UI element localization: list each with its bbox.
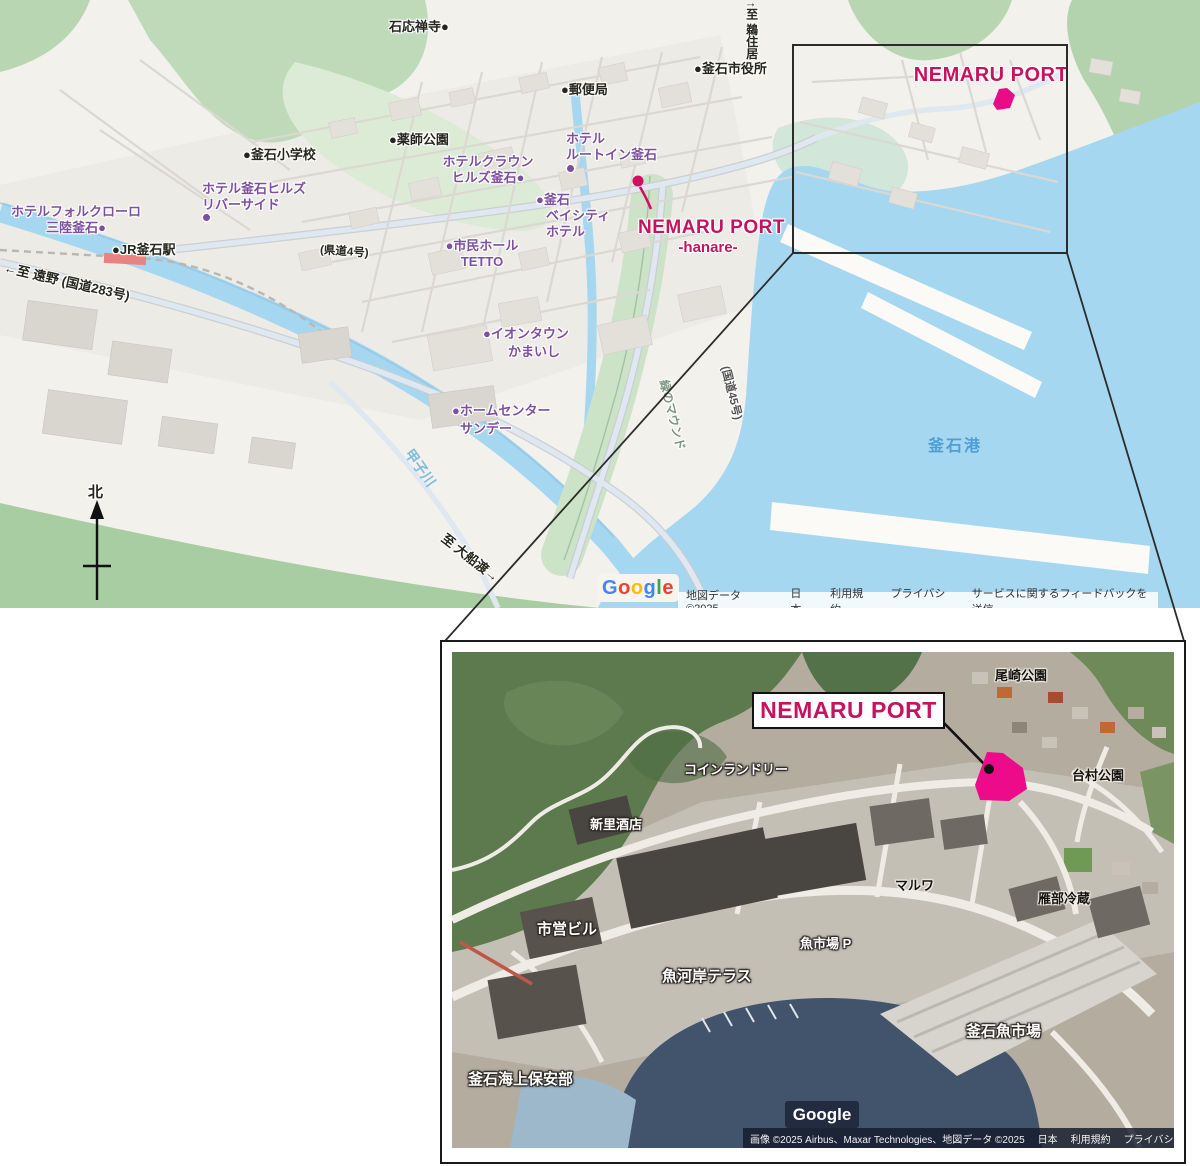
label-hotel-route-inn: ホテル ルートイン釜石 [566,131,657,163]
attribution-privacy-link[interactable]: プライバシー [891,585,953,609]
label-folkloro-line1: ホテルフォルクローロ [8,204,144,220]
satellite-map[interactable]: 尾崎公園 NEMARU PORT 台村公園 コインランドリー 新里酒店 マルワ … [452,652,1174,1148]
label-civic-hall-tetto: ●市民ホール TETTO [430,238,534,270]
label-hotel-crown-line2: ヒルズ釜石● [438,170,538,186]
google-letter: o [631,577,644,600]
label-kamaishi-port-sea: 釜石港 [928,437,982,457]
label-maruwa: マルワ [895,879,934,893]
label-north: 北 [88,484,103,502]
label-sekio-zenji-temple: 石応禅寺● [389,19,449,35]
map-screenshot: 石応禅寺● ●郵便局 ●釜石市役所 ↑至 鵜住居 ●薬師公園 ●釜石小学校 ホテ… [0,0,1200,1166]
label-fish-market-parking: 魚市場 P [800,937,851,951]
label-jr-kamaishi-station: ●JR釜石駅 [112,242,175,258]
attribution-terms-link[interactable]: 利用規約 [830,585,871,609]
label-aeon-town-line1: ●イオンタウン [483,326,569,342]
nemaru-port-callout-box: NEMARU PORT [752,692,945,729]
label-hotel-kamaishi-hills: ホテル釜石ヒルズ リバーサイド [202,181,306,213]
label-hanare-line1: NEMARU PORT [638,216,778,239]
label-hanare-line2: -hanare- [638,239,778,257]
inset-attribution-credit: 画像 ©2025 Airbus、Maxar Technologies、地図データ… [750,1131,1025,1146]
label-city-hall: ●釜石市役所 [694,61,767,77]
label-post-office: ●郵便局 [561,82,608,98]
label-baycity-line2: ベイシティ [536,208,610,224]
label-hotel-route-inn-line1: ホテル [566,131,657,147]
label-daimura-park: 台村公園 [1072,769,1124,783]
label-hotel-crown-line1: ホテルクラウン [438,154,538,170]
inset-attribution-bar: 画像 ©2025 Airbus、Maxar Technologies、地図データ… [743,1128,1174,1148]
label-yakushi-park: ●薬師公園 [389,132,449,148]
inset-attribution-privacy-link[interactable]: プライバシー [1124,1131,1174,1146]
label-aeon-town-line2: かまいし [508,344,560,360]
inset-frame: 尾崎公園 NEMARU PORT 台村公園 コインランドリー 新里酒店 マルワ … [440,640,1186,1164]
label-baycity-line3: ホテル [536,224,610,240]
street-map[interactable]: 石応禅寺● ●郵便局 ●釜石市役所 ↑至 鵜住居 ●薬師公園 ●釜石小学校 ホテ… [0,0,1200,608]
label-tetto-line2: TETTO [430,254,534,270]
google-letter: g [644,577,657,600]
label-folkloro-line2: 三陸釜石● [8,220,144,236]
inset-attribution-country: 日本 [1038,1131,1058,1146]
label-hotel-hills-line1: ホテル釜石ヒルズ [202,181,306,197]
label-home-center-sunday-line1: ●ホームセンター [452,403,550,419]
label-baycity-hotel: ●釜石 ベイシティ ホテル [536,192,610,240]
label-baycity-line1: ●釜石 [536,192,610,208]
label-niisato-saketen: 新里酒店 [590,818,642,832]
label-tetto-line1: ●市民ホール [430,238,534,254]
label-hotel-folkloro: ホテルフォルクローロ 三陸釜石● [8,204,144,236]
label-ganbe-reizo: 雁部冷蔵 [1038,892,1090,906]
label-to-unosumai: ↑至 鵜住居 [744,2,759,59]
google-logo-inset[interactable]: Google [785,1101,859,1128]
label-coast-guard: 釜石海上保安部 [468,1072,573,1089]
label-kamaishi-fish-market: 釜石魚市場 [966,1024,1041,1041]
inset-attribution-terms-link[interactable]: 利用規約 [1071,1131,1111,1146]
google-letter: G [602,577,618,600]
label-shiei-building: 市営ビル [537,922,597,939]
attribution-country: 日本 [790,585,811,609]
map-attribution-bar: 地図データ ©2025 日本 利用規約 プライバシー サービスに関するフィードバ… [678,592,1158,608]
label-home-center-sunday-line2: サンデー [460,421,512,437]
attribution-map-data: 地図データ ©2025 [686,587,771,609]
label-nemaru-port-hanare: NEMARU PORT -hanare- [638,216,778,257]
label-hotel-route-inn-line2: ルートイン釜石 [566,147,657,163]
label-coin-laundry: コインランドリー [684,763,788,777]
attribution-feedback-link[interactable]: サービスに関するフィードバックを送信 [972,585,1158,609]
label-ozaki-park: 尾崎公園 [995,669,1047,683]
google-logo[interactable]: Google [597,574,679,602]
poi-dot-hotel-hills [203,214,210,221]
poi-dot-route-inn [567,165,574,172]
inset-connector-dot [984,764,994,774]
label-hotel-crown-hills: ホテルクラウン ヒルズ釜石● [438,154,538,186]
label-uogashi-terrace: 魚河岸テラス [662,969,752,986]
google-letter: e [662,577,674,600]
label-nemaru-port-main: NEMARU PORT [914,63,1068,87]
label-hotel-hills-line2: リバーサイド [202,197,306,213]
google-letter: o [618,577,631,600]
label-kamaishi-elementary: ●釜石小学校 [243,147,316,163]
